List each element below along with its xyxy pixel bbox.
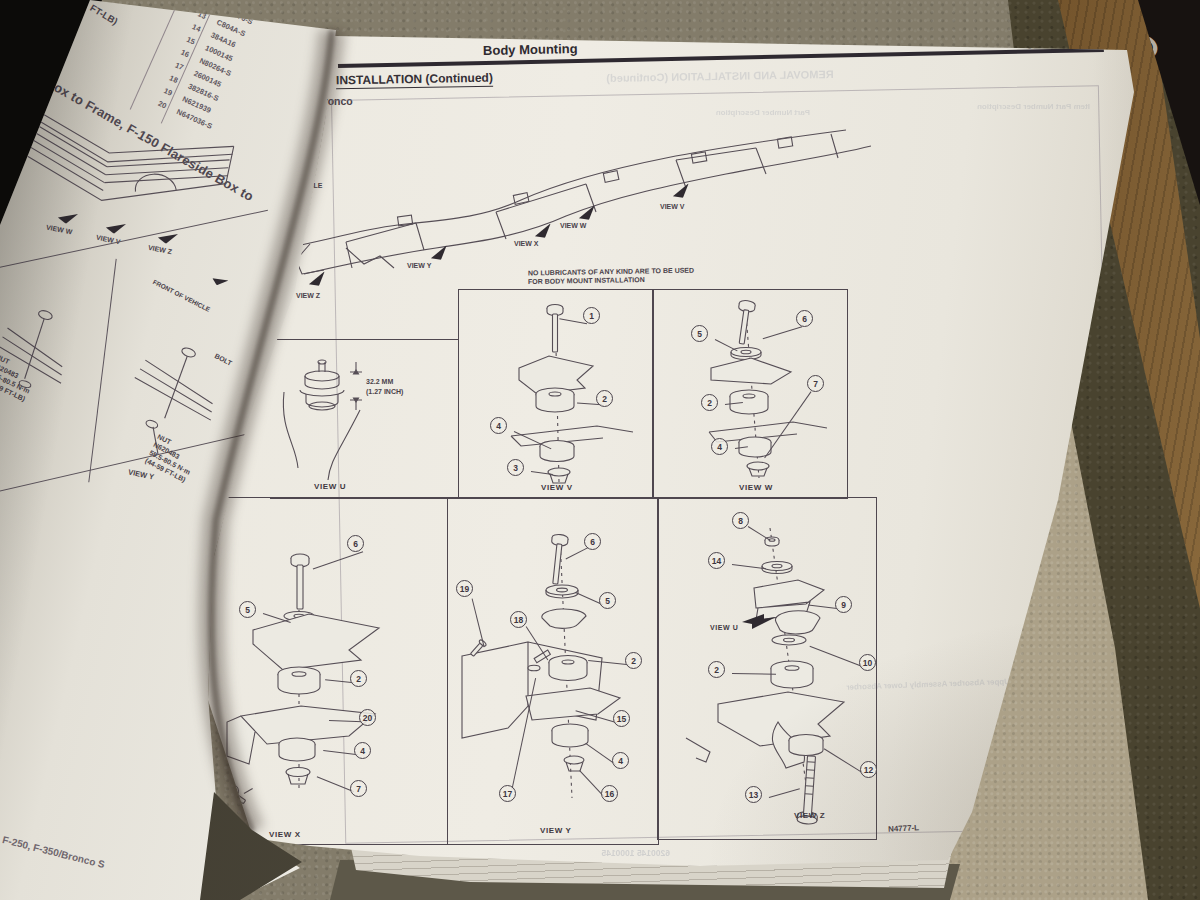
frame-view-v: VIEW V	[660, 203, 685, 210]
header-rule	[338, 48, 1104, 68]
panel-view-w: 6 5 2 4 7 VIEW W	[652, 289, 848, 499]
frame-view-x: VIEW X	[514, 240, 539, 247]
callout-16: 16	[601, 785, 618, 802]
callout-2: 2	[596, 390, 613, 407]
callout-10: 10	[859, 654, 876, 671]
callout-7: 7	[807, 375, 824, 392]
callout-9: 9	[835, 596, 852, 613]
panel-view-y: 6 5 19 18 2 15 4 17 16 VIEW Y	[447, 497, 659, 845]
view-v-label: VIEW V	[541, 483, 573, 492]
exploded-view-art	[658, 498, 876, 839]
panel-view-x: 6 5 2 20 4 7 21 VIEW X	[213, 497, 448, 845]
frame-view-y: VIEW Y	[407, 262, 431, 269]
callout-6: 6	[347, 535, 364, 552]
callout-1: 1	[583, 307, 600, 324]
panel-view-u: 32.2 MM (1.27 INCH) VIEW U	[270, 339, 459, 499]
callout-6: 6	[584, 533, 601, 550]
callout-3: 3	[507, 459, 524, 476]
callout-20: 20	[359, 709, 376, 726]
callout-13: 13	[745, 786, 762, 803]
front-arrow-icon	[211, 273, 229, 289]
callout-15: 15	[613, 710, 630, 727]
callout-12: 12	[860, 761, 877, 778]
frame-view-w: VIEW W	[560, 222, 586, 229]
torque-fragment: FT-LB)	[88, 2, 119, 27]
exploded-view-art	[653, 290, 847, 498]
panel-view-v: 1 2 4 3 VIEW V	[458, 289, 654, 499]
callout-4: 4	[354, 742, 371, 759]
callout-19: 19	[456, 580, 473, 597]
frame-view-z: VIEW Z	[296, 292, 320, 299]
callout-7: 7	[350, 780, 367, 797]
callout-2: 2	[350, 670, 367, 687]
callout-5: 5	[691, 325, 708, 342]
callout-14: 14	[708, 552, 725, 569]
ghost-removal-heading: REMOVAL AND INSTALLATION (Continued)	[520, 67, 920, 86]
callout-5: 5	[599, 592, 616, 609]
callout-8: 8	[732, 512, 749, 529]
page-header-title: Body Mounting	[483, 41, 578, 58]
panel-view-z: 8 14 9 10 2 12 13 VIEW U VIEW Z	[657, 497, 877, 840]
front-of-vehicle-label: FRONT OF VEHICLE	[152, 278, 211, 313]
view-w-label: VIEW W	[739, 483, 773, 492]
view-u-label: VIEW U	[314, 482, 346, 491]
mount-section-art	[270, 340, 458, 498]
view-z-label: VIEW Z	[794, 811, 825, 820]
exploded-view-art	[213, 498, 447, 844]
ghost-part-numbers: 6200145 1000145	[470, 848, 670, 858]
view-y-label: VIEW Y	[540, 826, 571, 835]
callout-17: 17	[499, 785, 516, 802]
callout-4: 4	[490, 417, 507, 434]
inner-view-u-label: VIEW U	[710, 624, 739, 631]
exploded-view-art	[459, 290, 653, 498]
exploded-view-art	[448, 498, 658, 844]
dimension-line2: (1.27 INCH)	[366, 388, 403, 395]
callout-2: 2	[701, 394, 718, 411]
photo-of-open-service-manual: RGO 1990 FT-LB) Styleside Box to Frame, …	[0, 0, 1200, 900]
callout-5: 5	[239, 601, 256, 618]
callout-4: 4	[711, 438, 728, 455]
callout-4: 4	[612, 752, 629, 769]
callout-18: 18	[510, 611, 527, 628]
view-x-label: VIEW X	[269, 830, 301, 839]
figure-code: N4777-L	[888, 823, 920, 834]
page-edge-text: F-250, F-350/Bronco S	[1, 834, 106, 870]
callout-2: 2	[625, 652, 642, 669]
callout-6: 6	[796, 310, 813, 327]
dimension-line1: 32.2 MM	[366, 378, 393, 385]
section-heading: INSTALLATION (Continued)	[336, 71, 493, 90]
callout-2: 2	[708, 661, 725, 678]
